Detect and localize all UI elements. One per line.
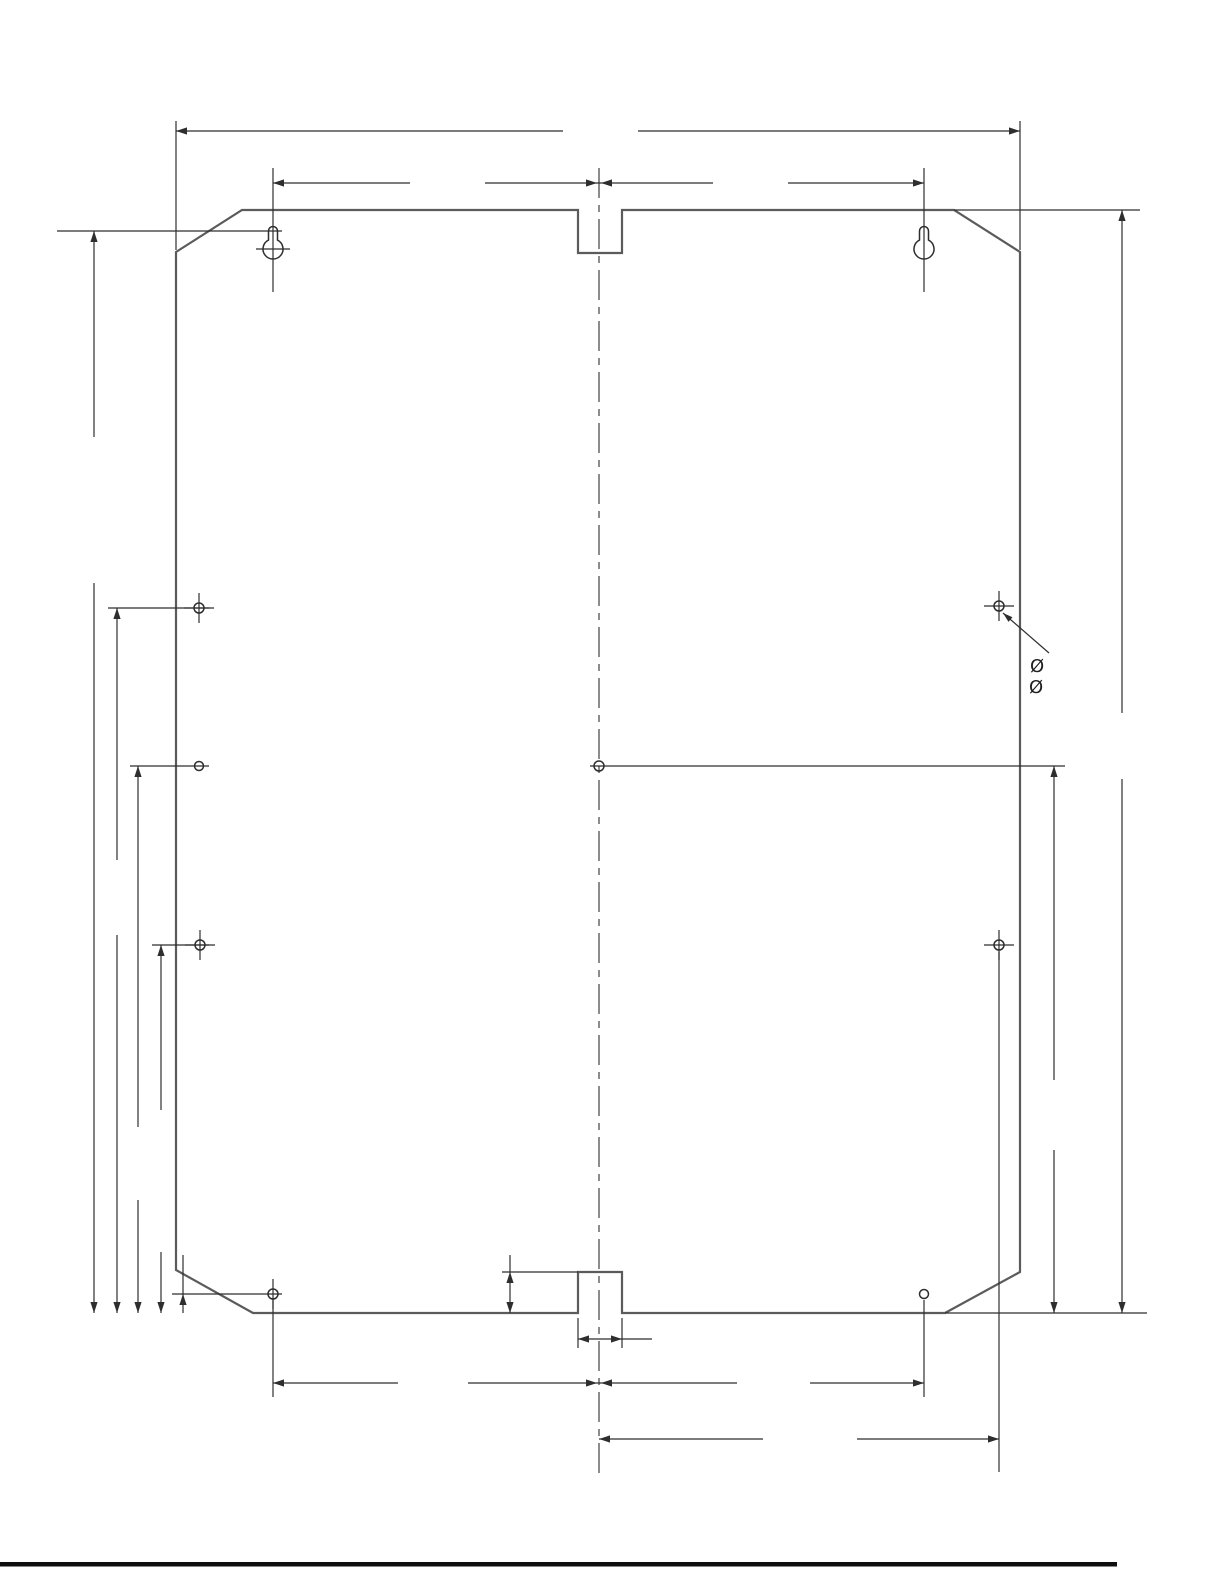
dim-bottom-notch-width [578,1318,652,1348]
dim-keyhole-to-bottom [57,231,282,1313]
dim-overall-width [176,121,1020,250]
dimension-drawing: Ø Ø [0,0,1225,1585]
dim-center-to-right-hole [599,952,999,1472]
keyhole-slot-right [914,168,934,292]
dim-left-lower-hole-to-bottom [152,945,209,1313]
dim-left-upper-hole-to-bottom [108,608,209,1313]
hole-bottom-right [920,1290,929,1299]
dim-center-hole-to-bottom [590,766,1065,1313]
dim-left-middle-hole-to-bottom [130,766,209,1313]
page-footer-rule [0,1562,1117,1567]
diameter-symbol-2: Ø [1029,677,1043,698]
drawing-sheet: Ø Ø [0,0,1225,1585]
keyhole-slot-left [256,168,290,292]
dim-overall-height [945,210,1147,1313]
dim-bottom-notch-height [502,1255,578,1313]
dim-bottom-left-hole-offset [172,1255,282,1313]
diameter-symbol-1: Ø [1030,656,1044,677]
diameter-callout-leader [1003,613,1049,653]
